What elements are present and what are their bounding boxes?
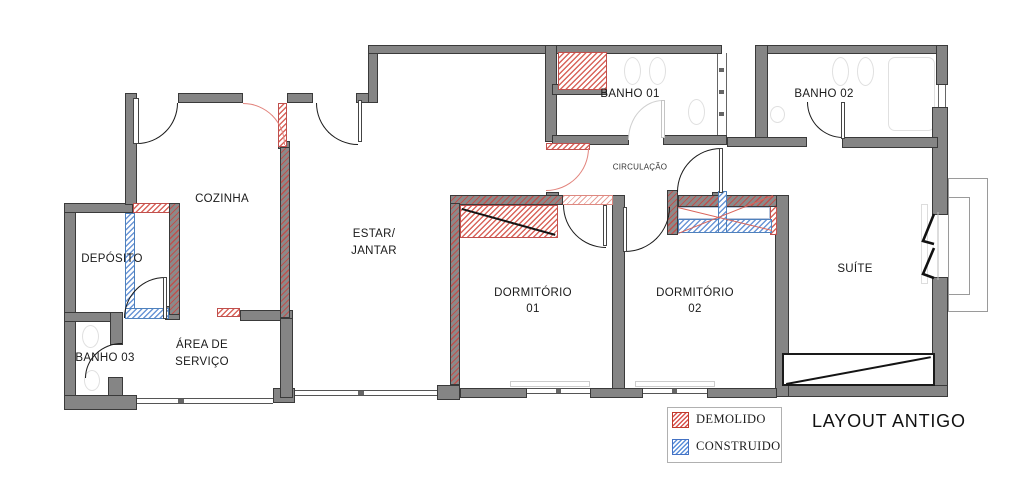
wall-corridor-banho02-left xyxy=(727,137,807,147)
door-leaf-dormitorio02 xyxy=(623,207,627,252)
wall-top-kitchen-b xyxy=(287,93,313,103)
demolished-closet-banho01 xyxy=(558,52,607,90)
door-arc-suite xyxy=(677,148,721,192)
wall-exterior-bottom-left xyxy=(64,395,137,410)
toilet-fixture xyxy=(624,57,641,85)
legend-label-demolido: DEMOLIDO xyxy=(696,412,766,427)
demolished-wall-dorm01-left xyxy=(450,203,460,385)
window-tick xyxy=(719,90,724,94)
room-label-circulacao: CIRCULAÇÃO xyxy=(613,163,667,172)
floor-plan: COZINHA DEPÓSITO BANHO 03 ÁREA DE SERVIÇ… xyxy=(0,0,1024,479)
legend-label-construido: CONSTRUIDO xyxy=(696,439,781,454)
window-tick xyxy=(719,68,724,72)
wall-banho01-bottom-right xyxy=(663,135,727,145)
plan-title: LAYOUT ANTIGO xyxy=(812,411,966,432)
wall-divider-kitchen-lower xyxy=(280,318,293,398)
wall-banho02-right-upper xyxy=(936,45,948,85)
door-leaf-dormitorio01 xyxy=(603,205,607,246)
wall-banho03-jamb-lower xyxy=(108,377,123,397)
room-label-dorm01-1: DORMITÓRIO xyxy=(494,287,572,299)
wall-banho03-jamb-upper xyxy=(110,312,123,345)
door-arc-dormitorio02 xyxy=(625,207,670,252)
demolished-wall-servico xyxy=(217,308,240,317)
wall-deposito-top xyxy=(64,203,133,213)
door-arc-dormitorio01 xyxy=(563,205,606,248)
room-label-banho02: BANHO 02 xyxy=(794,88,853,100)
wall-dorm-bottom-middle xyxy=(590,388,643,398)
built-closet-dorm02-divider xyxy=(718,191,727,233)
room-label-area-servico-2: SERVIÇO xyxy=(175,356,229,368)
window-servico xyxy=(135,398,273,404)
window-sill xyxy=(510,381,590,387)
window-banho02 xyxy=(938,83,946,109)
wall-dorm01-bottom-corner xyxy=(437,385,460,400)
room-label-banho01: BANHO 01 xyxy=(600,88,659,100)
room-label-dorm02-1: DORMITÓRIO xyxy=(656,287,734,299)
toilet-fixture xyxy=(82,325,99,348)
door-arc-kitchen-entry xyxy=(137,103,178,144)
room-label-dorm01-2: 01 xyxy=(526,303,539,315)
door-leaf-estar-entry xyxy=(358,100,362,142)
room-label-estar-1: ESTAR/ xyxy=(353,228,395,240)
door-leaf-banho01 xyxy=(661,100,665,138)
wall-banho02-left xyxy=(755,45,768,141)
room-label-estar-2: JANTAR xyxy=(351,245,397,257)
casement-window-suite xyxy=(918,212,942,280)
door-leaf-banho02 xyxy=(841,102,845,139)
wall-exterior-left xyxy=(64,203,76,410)
window-tick xyxy=(719,112,724,116)
door-leaf-suite xyxy=(719,148,723,193)
wall-top-kitchen-a xyxy=(178,93,243,103)
room-label-suite: SUÍTE xyxy=(837,263,872,275)
demolished-wall-circulacao xyxy=(558,195,613,205)
toilet-fixture xyxy=(688,99,705,125)
demolished-wall-deposito-right xyxy=(169,203,180,315)
wall-banho02-top xyxy=(755,45,948,54)
window-estar xyxy=(295,390,437,396)
balcony-outline-inner xyxy=(948,197,970,295)
wall-right-mid xyxy=(932,107,948,215)
sink-fixture xyxy=(770,106,785,123)
window-tick xyxy=(556,389,561,393)
wall-dorm01-bottom xyxy=(460,388,527,398)
door-arc-banho02 xyxy=(807,102,843,138)
legend-swatch-demolido xyxy=(672,412,689,428)
wall-dorm02-bottom xyxy=(707,388,777,398)
door-leaf-kitchen-entry xyxy=(133,98,139,144)
room-label-cozinha: COZINHA xyxy=(195,193,249,205)
window-sill xyxy=(635,381,715,387)
demolished-wall-kitchen-divider xyxy=(280,147,290,318)
window-banho01 xyxy=(717,53,727,135)
window-tick xyxy=(358,391,364,395)
wall-suite-bottom xyxy=(777,385,948,397)
bidet-fixture xyxy=(857,57,874,86)
legend-swatch-construido xyxy=(672,439,689,455)
wall-corridor-banho02-right xyxy=(842,137,938,148)
door-arc-estar-entry xyxy=(316,103,358,145)
window-tick xyxy=(672,389,677,393)
bathtub-fixture xyxy=(888,57,935,131)
door-arc-banho01 xyxy=(628,100,663,140)
door-leaf-deposito xyxy=(163,277,167,319)
room-label-area-servico-1: ÁREA DE xyxy=(176,339,228,351)
door-arc-circulacao-demolished xyxy=(546,148,589,191)
demolished-closet-dorm02-top xyxy=(678,195,777,207)
room-label-dorm02-2: 02 xyxy=(688,303,701,315)
bidet-fixture xyxy=(649,57,666,85)
window-tick xyxy=(178,399,184,403)
demolished-wall-dorm01-top xyxy=(450,195,563,205)
room-label-deposito: DEPÓSITO xyxy=(81,253,143,265)
toilet-fixture xyxy=(832,57,849,86)
room-label-banho03: BANHO 03 xyxy=(75,352,134,364)
